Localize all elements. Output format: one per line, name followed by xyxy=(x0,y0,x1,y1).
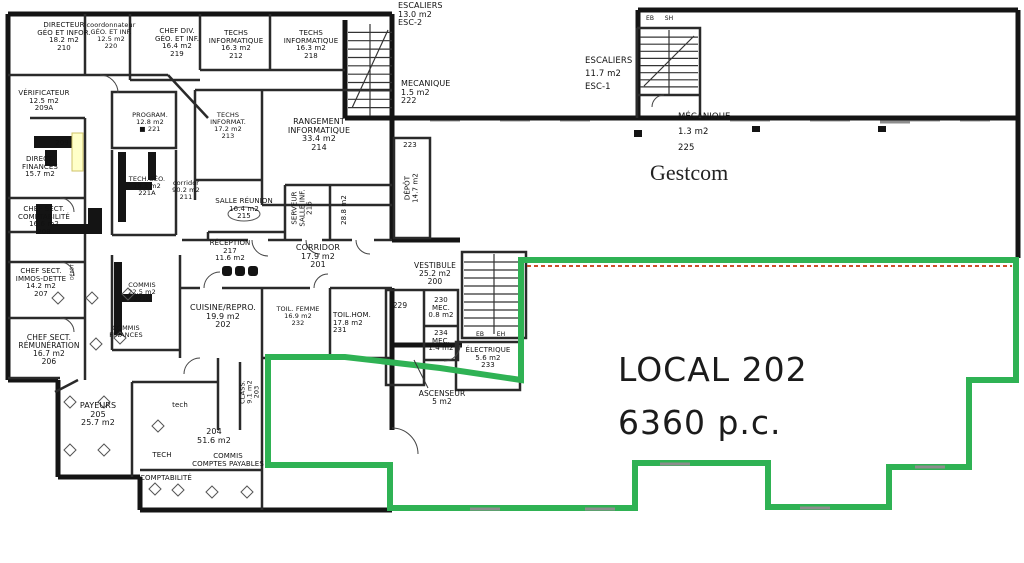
room-label-tech-geo-221a: TECH.GÉO. 19.3 m2 221A xyxy=(129,176,165,197)
room-label-chef-sect-remuneration: CHEF SECT. RÉMUNÉRATION 16.7 m2 206 xyxy=(18,334,79,366)
floor-plan: DIRECTEUR GÉO ET INFOR. 18.2 m2 210coord… xyxy=(0,0,1024,563)
room-label-room-229: 229 xyxy=(393,302,408,310)
room-label-reception-217: RÉCEPTION 217 11.6 m2 xyxy=(210,240,251,263)
room-label-class-203: CLASS. 9.1 m2 203 xyxy=(239,380,260,404)
room-label-verificateur: VÉRIFICATEUR 12.5 m2 209A xyxy=(18,90,69,113)
room-label-stair-label-sh-top: SH xyxy=(665,16,674,22)
room-label-coordonnateur-geo: coordonnateur GÉO. ET INF. 12.5 m2 220 xyxy=(86,22,135,50)
column-dots xyxy=(634,126,886,137)
room-label-room-28-8: 28.8 m2 xyxy=(341,195,349,225)
room-label-mecanique-225: MÉCANIQUE 1.3 m2 225 xyxy=(678,110,731,156)
room-label-toil-femme-232: TOIL. FEMME 16.9 m2 232 xyxy=(276,306,319,327)
room-label-salle-reunion-215: SALLE RÉUNION 16.4 m2 215 xyxy=(215,198,273,221)
room-label-stair-label-eh-vestibule: EH xyxy=(497,332,506,338)
room-label-directeur-geo-infor: DIRECTEUR GÉO ET INFOR. 18.2 m2 210 xyxy=(37,22,90,52)
room-label-commis-221b: COMMIS 22.5 m2 221B xyxy=(128,282,156,303)
room-label-commis-finances: COMMIS FINANCES xyxy=(109,325,142,339)
local-202-title: LOCAL 2026360 p.c. xyxy=(618,344,808,450)
tenant-name-label: Gestcom xyxy=(650,160,728,186)
room-label-chef-div-geo: CHEF DIV. GÉO. ET INF. 16.4 m2 219 xyxy=(155,28,199,58)
room-label-chef-sect-immos-dette: CHEF SECT. IMMOS-DETTE 14.2 m2 207 xyxy=(16,268,66,298)
room-label-mec-234: 234 MEC. 1.4 m2 xyxy=(428,330,453,353)
room-label-commis-comptes-payables: COMMIS COMPTES PAYABLES xyxy=(192,453,264,468)
room-label-room-204: 204 51.6 m2 xyxy=(197,428,231,445)
room-label-vestibule-200: VESTIBULE 25.2 m2 200 xyxy=(414,262,456,286)
room-label-room-209: 209 xyxy=(55,140,69,148)
room-label-directeur-finances: DIRECT. FINANCES 15.7 m2 xyxy=(22,156,58,179)
local-202-number: LOCAL 202 xyxy=(618,350,808,389)
room-label-escaliers-esc2: ESCALIERS 13.0 m2 ESC-2 xyxy=(398,2,443,28)
room-label-tech-small: tech xyxy=(172,402,188,410)
room-label-mec-230: 230 MEC. 0.8 m2 xyxy=(428,297,453,320)
room-label-stair-label-eb-top: EB xyxy=(646,16,654,22)
room-label-electrique-233: ÉLECTRIQUE 5.6 m2 233 xyxy=(466,347,511,370)
room-label-toil-hom-231: TOIL.HOM. 17.8 m2 231 xyxy=(333,312,371,335)
room-label-escaliers-esc1: ESCALIERS 11.7 m2 ESC-1 xyxy=(585,55,632,93)
room-label-stair-label-eb-vestibule: EB xyxy=(476,332,484,338)
room-label-corridor-211: corridor 90.2 m2 211 xyxy=(172,180,200,201)
room-label-payeurs-205: PAYEURS 205 25.7 m2 xyxy=(80,402,116,428)
room-label-chef-sect-comptabilite: CHEF SECT. COMPTABILITÉ 16.6 m2 208 xyxy=(18,206,70,236)
room-label-techs-informatique-218: TECHS INFORMATIQUE 16.3 m2 218 xyxy=(284,30,339,60)
room-label-mecanique-222: MECANIQUE 1.5 m2 222 xyxy=(401,80,450,106)
room-label-techs-informat-213: TECHS INFORMAT. 17.2 m2 213 xyxy=(210,112,246,140)
room-label-rangement-informatique-214: RANGEMENT INFORMATIQUE 33.4 m2 214 xyxy=(288,118,350,153)
room-label-comptabilite: COMPTABILITÉ xyxy=(140,475,192,483)
room-label-cuisine-repro-202: CUISINE/REPRO. 19.9 m2 202 xyxy=(190,304,256,330)
room-label-depot-223: DÉPÔT 14.7 m2 xyxy=(404,173,419,203)
room-label-program-221: PROGRAM. 12.8 m2 ■ 221 xyxy=(132,112,168,133)
room-label-room-223: 223 xyxy=(403,142,417,150)
highlight-marker xyxy=(72,133,83,171)
room-label-techs-informatique-212: TECHS INFORMATIQUE 16.3 m2 212 xyxy=(209,30,264,60)
room-label-depot-mini: DÉPÔT xyxy=(72,264,77,280)
room-label-corridor-201: CORRIDOR 17.9 m2 201 xyxy=(296,244,340,270)
room-label-ascenseur: ASCENSEUR 5 m2 xyxy=(419,390,466,406)
room-label-serveur-salle-inf-216: SERVEUR SALLE INF. 216 xyxy=(292,189,315,226)
room-label-tech-caps: TECH xyxy=(152,452,171,460)
local-202-area: 6360 p.c. xyxy=(618,403,782,442)
